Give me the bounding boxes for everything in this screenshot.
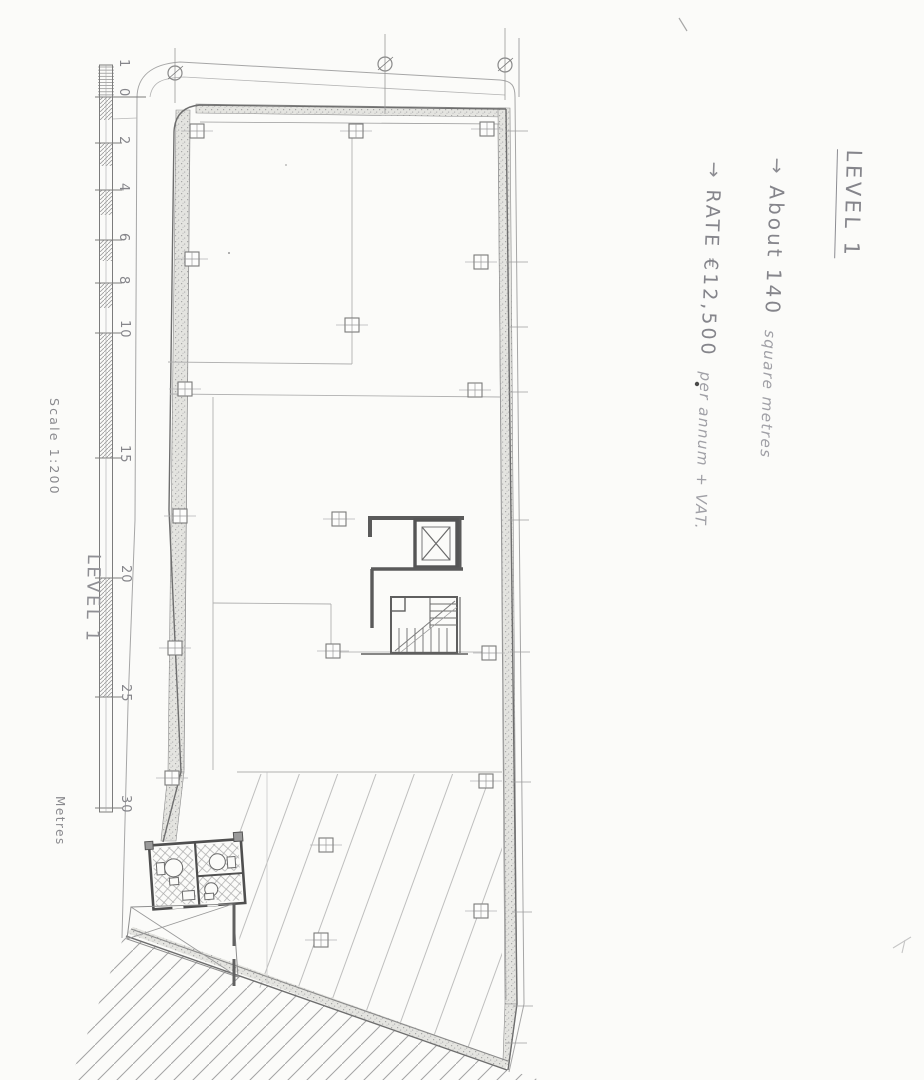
- toilet-block: [145, 832, 248, 911]
- note-area-lead: About 140: [760, 185, 789, 316]
- scale-tick-label: 10: [117, 320, 132, 339]
- scale-tick-label: 25: [118, 684, 133, 703]
- column: [473, 646, 505, 660]
- note-title: LEVEL 1: [834, 149, 866, 259]
- column: [317, 644, 349, 658]
- column: [340, 124, 372, 138]
- note-area-tail: square metres: [757, 330, 779, 459]
- wall-post: [145, 841, 154, 850]
- units-label: Metres: [53, 796, 67, 846]
- column: [323, 512, 355, 526]
- scale-tick-label: 1: [116, 59, 131, 68]
- arrow-icon: →: [702, 161, 725, 178]
- scale-tick-label: 0: [116, 88, 131, 97]
- column: [159, 641, 191, 655]
- lift-shaft: [368, 518, 464, 628]
- scale-text: Scale 1:200: [47, 398, 62, 496]
- scale-tick-label: 2: [116, 136, 131, 145]
- scale-tick-label: 8: [116, 276, 131, 285]
- scale-tick-label: 20: [118, 565, 133, 584]
- staircase: [361, 597, 468, 654]
- column: [465, 255, 497, 269]
- wall-post: [233, 832, 243, 842]
- scale-tick-label: 4: [116, 183, 131, 192]
- scale-level-label: LEVEL 1: [81, 554, 104, 644]
- column: [459, 383, 491, 397]
- scale-tick-label: 6: [116, 233, 131, 242]
- door-gap: [207, 900, 218, 907]
- grid-marker: [498, 28, 513, 100]
- scale-tick-label: 30: [118, 795, 133, 814]
- scanned-floor-plan-page: Scale 1:200 Metres LEVEL 1 LEVEL 1 →Abou…: [0, 0, 924, 1080]
- arrow-icon: →: [765, 157, 788, 174]
- scale-tick-label: 15: [117, 445, 132, 464]
- column: [336, 318, 368, 332]
- note-rate-tail: per annum + VAT.: [691, 371, 715, 530]
- grid-marker: [168, 48, 183, 103]
